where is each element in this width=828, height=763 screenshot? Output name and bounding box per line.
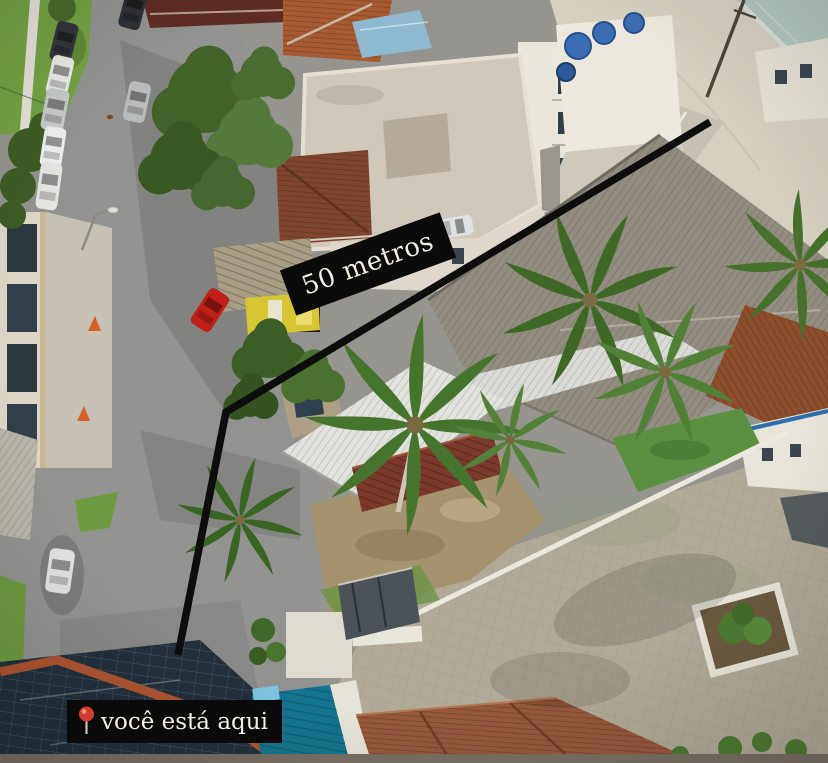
you-are-here-label: você está aqui: [67, 700, 282, 743]
location-pin-icon: [79, 706, 94, 738]
you-are-here-text: você está aqui: [101, 709, 268, 735]
aerial-photo-stage: 50 metros você está aqui: [0, 0, 828, 763]
aerial-photo: [0, 0, 828, 763]
vignette: [0, 0, 828, 763]
